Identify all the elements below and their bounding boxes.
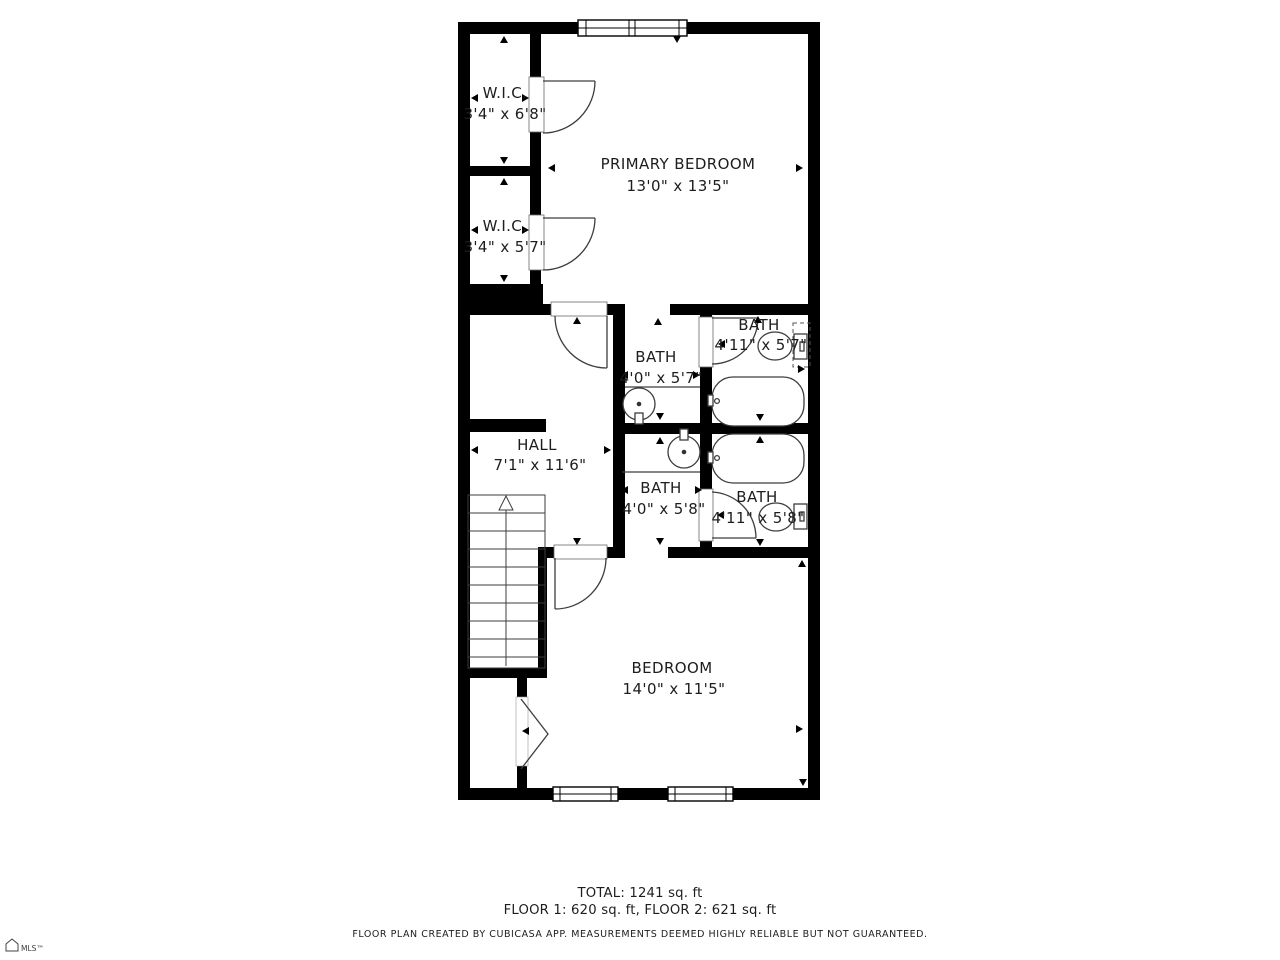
room-dims-wic-2: 3'4" x 5'7"	[463, 238, 546, 256]
room-dims-bedroom: 14'0" x 11'5"	[623, 680, 726, 698]
stairs	[468, 495, 545, 668]
disclaimer-text: FLOOR PLAN CREATED BY CUBICASA APP. MEAS…	[352, 929, 927, 940]
door-wic-bottom-icon	[543, 218, 595, 270]
room-label-wic-2: W.I.C.	[483, 217, 528, 235]
summary: TOTAL: 1241 sq. ft FLOOR 1: 620 sq. ft, …	[352, 886, 927, 940]
room-dims-bath-lower-mid: 4'0" x 5'8"	[622, 500, 705, 518]
room-dims-wic-1: 3'4" x 6'8"	[463, 105, 546, 123]
room-label-primary-bedroom: PRIMARY BEDROOM	[601, 155, 756, 173]
room-dims-bath-upper-mid: 4'0" x 5'7"	[619, 369, 702, 387]
door-bedroom-icon	[555, 558, 606, 609]
bathtub-icon	[708, 377, 804, 426]
room-label-bath-lower-mid: BATH	[640, 479, 681, 497]
room-label-wic-1: W.I.C.	[483, 84, 528, 102]
room-label-bath-upper-right: BATH	[738, 316, 779, 334]
room-dims-bath-lower-right: 4'11" x 5'8"	[712, 509, 805, 527]
room-label-hall: HALL	[517, 436, 557, 454]
bathtub-icon	[708, 434, 804, 483]
room-dims-hall: 7'1" x 11'6"	[494, 456, 587, 474]
stairs-up-arrow-icon	[499, 496, 513, 510]
floor-plan-page: W.I.C. 3'4" x 6'8" W.I.C. 3'4" x 5'7" PR…	[0, 0, 1280, 960]
total-area-text: TOTAL: 1241 sq. ft	[576, 886, 702, 901]
mls-logo: MLS™	[6, 939, 44, 953]
room-label-bath-lower-right: BATH	[736, 488, 777, 506]
window-icon	[578, 20, 687, 36]
window-icon	[553, 787, 618, 801]
floor-areas-text: FLOOR 1: 620 sq. ft, FLOOR 2: 621 sq. ft	[504, 903, 777, 918]
door-hall-icon	[555, 316, 607, 368]
mls-logo-text: MLS™	[21, 944, 44, 953]
room-dims-primary-bedroom: 13'0" x 13'5"	[627, 177, 730, 195]
door-wic-top-icon	[543, 81, 595, 133]
floor-plan: W.I.C. 3'4" x 6'8" W.I.C. 3'4" x 5'7" PR…	[0, 0, 1280, 960]
window-icon	[668, 787, 733, 801]
room-label-bath-upper-mid: BATH	[635, 348, 676, 366]
room-label-bedroom: BEDROOM	[631, 659, 712, 677]
sink-icon	[622, 429, 700, 472]
sink-icon	[623, 387, 700, 424]
room-dims-bath-upper-right: 4'11" x 5'7"	[715, 336, 808, 354]
house-icon	[6, 939, 18, 951]
